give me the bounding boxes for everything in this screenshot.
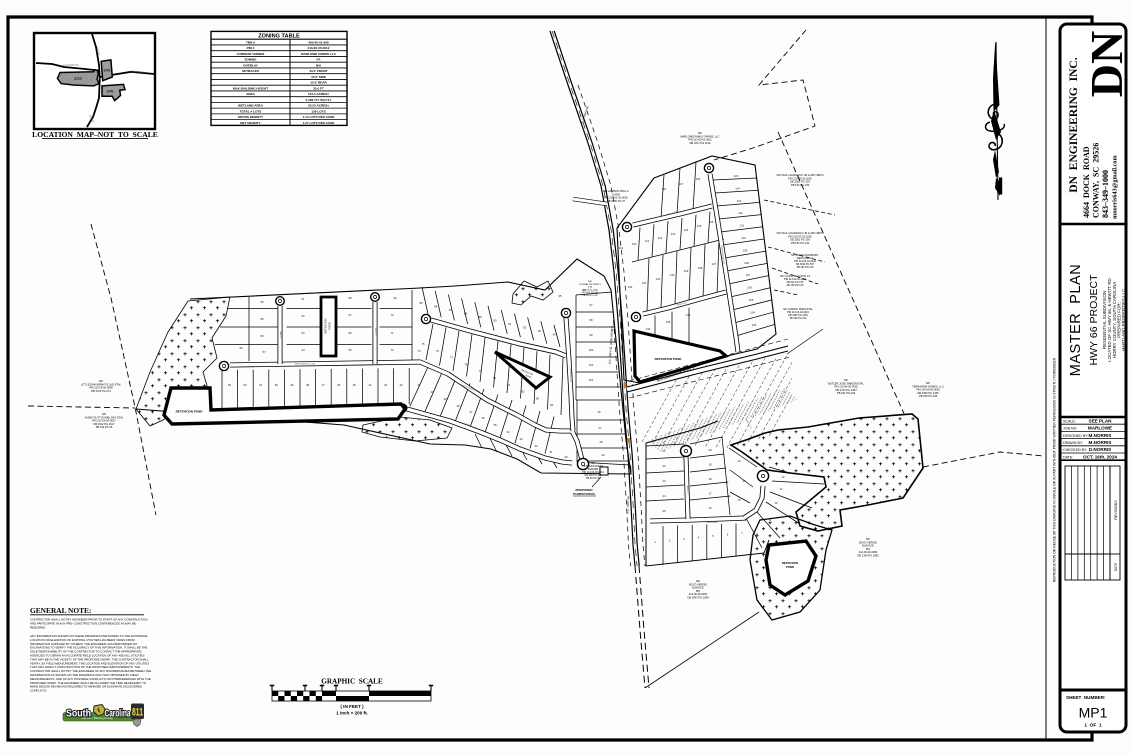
svg-text:M.NORRIS: M.NORRIS: [1089, 440, 1112, 445]
svg-text:37: 37: [469, 410, 473, 414]
svg-text:POND: POND: [786, 565, 794, 569]
svg-text:95: 95: [558, 294, 562, 298]
svg-text:41: 41: [417, 383, 421, 387]
svg-text:SEE PLAN: SEE PLAN: [1089, 418, 1113, 423]
svg-text:57: 57: [262, 350, 266, 354]
svg-text:843–349–1000: 843–349–1000: [1101, 170, 1110, 218]
svg-text:OCT. 16th, 2024: OCT. 16th, 2024: [1083, 454, 1117, 459]
svg-text:106: 106: [747, 286, 752, 290]
svg-text:213-02-02-0066: 213-02-02-0066: [582, 289, 598, 291]
svg-text:PB 182 PG 109: PB 182 PG 109: [790, 317, 807, 320]
svg-text:Carolina: Carolina: [105, 709, 131, 720]
svg-text:120: 120: [632, 242, 637, 246]
svg-text:26: 26: [597, 410, 601, 414]
svg-text:39: 39: [443, 397, 447, 401]
svg-text:RETENTION: RETENTION: [324, 318, 328, 333]
svg-text:CONWAY, SC 29526: CONWAY, SC 29526: [1092, 143, 1101, 218]
svg-text:213-00-00-0012: 213-00-00-0012: [307, 46, 329, 50]
svg-text:136: 136: [686, 313, 691, 317]
svg-text:35.0 FT: 35.0 FT: [313, 86, 324, 90]
svg-text:130: 130: [670, 273, 675, 277]
svg-text:KATIE AVE: KATIE AVE: [707, 521, 719, 524]
svg-text:56: 56: [239, 346, 243, 350]
svg-text:98: 98: [589, 318, 593, 322]
svg-text:10: 10: [774, 501, 778, 505]
svg-text:South: South: [66, 709, 91, 720]
svg-text:116: 116: [662, 187, 667, 191]
svg-text:DB 1843 PG 1098: DB 1843 PG 1098: [687, 595, 709, 599]
svg-text:PUMPSTATION: PUMPSTATION: [573, 492, 594, 496]
svg-text:40: 40: [430, 390, 434, 394]
svg-text:61: 61: [301, 297, 305, 301]
svg-text:mnorris643@gmail.com: mnorris643@gmail.com: [1112, 154, 1119, 219]
svg-text:PB 329 PG 238: PB 329 PG 238: [919, 394, 938, 398]
svg-text:60: 60: [260, 300, 264, 304]
svg-text:50: 50: [275, 383, 279, 387]
svg-text:117: 117: [679, 182, 684, 186]
svg-text:77: 77: [450, 356, 454, 360]
svg-text:SITE: SITE: [74, 77, 82, 81]
svg-text:114: 114: [735, 186, 740, 190]
svg-text:122: 122: [658, 236, 663, 240]
svg-text:ANNA CT: ANNA CT: [686, 485, 689, 495]
svg-text:110: 110: [741, 236, 746, 240]
svg-text:DB 2956 PG 37: DB 2956 PG 37: [607, 199, 626, 203]
svg-text:24: 24: [662, 494, 666, 498]
svg-text:PIN #: PIN #: [247, 46, 255, 50]
svg-text:17: 17: [708, 492, 712, 496]
svg-text:JOB NO.: JOB NO.: [1063, 427, 1077, 431]
svg-text:12: 12: [781, 475, 785, 479]
svg-text:119: 119: [619, 246, 624, 250]
svg-text:15.0' REAR: 15.0' REAR: [310, 81, 327, 85]
svg-text:125: 125: [697, 224, 702, 228]
svg-text:63: 63: [301, 331, 305, 335]
svg-text:PB 152 PG 139: PB 152 PG 139: [787, 284, 804, 287]
svg-text:59: 59: [260, 334, 264, 338]
svg-text:29: 29: [601, 453, 605, 457]
svg-text:107: 107: [746, 273, 751, 277]
svg-text:MP1: MP1: [1079, 705, 1108, 721]
svg-text:102: 102: [589, 378, 594, 382]
svg-text:HARTLAND PROPERTIES LLC: HARTLAND PROPERTIES LLC: [1121, 289, 1126, 351]
svg-text:90: 90: [493, 319, 497, 323]
svg-text:64: 64: [301, 348, 305, 352]
svg-text:AREA: AREA: [246, 92, 256, 96]
svg-text:100: 100: [589, 348, 594, 352]
svg-text:5,292,717 SQ.FT.±: 5,292,717 SQ.FT.±: [306, 98, 332, 102]
svg-text:OAK CT: OAK CT: [279, 331, 282, 340]
svg-text:DB 1004 PG 593: DB 1004 PG 593: [582, 292, 599, 294]
svg-text:78: 78: [464, 362, 468, 366]
svg-text:69: 69: [393, 296, 397, 300]
svg-text:48: 48: [306, 383, 310, 387]
svg-text:62: 62: [301, 314, 305, 318]
svg-text:PB 152 PG 139: PB 152 PG 139: [582, 295, 598, 297]
svg-text:( IN FEET ): ( IN FEET ): [340, 704, 364, 709]
svg-text:1.27 LOTS PER ACRE: 1.27 LOTS PER ACRE: [303, 121, 335, 125]
svg-text:WETLAND AREA: WETLAND AREA: [238, 104, 264, 108]
svg-text:127: 127: [712, 262, 717, 266]
svg-text:105: 105: [749, 298, 754, 302]
svg-text:ZONING TABLE: ZONING TABLE: [258, 34, 300, 40]
svg-text:53: 53: [228, 383, 232, 387]
svg-text:PB 152 PG 139: PB 152 PG 139: [791, 241, 810, 245]
svg-text:88: 88: [464, 312, 468, 316]
svg-text:463-00-01-060: 463-00-01-060: [308, 40, 329, 44]
svg-text:ZONING: ZONING: [244, 58, 257, 62]
svg-text:SADDLEBROOK DR: SADDLEBROOK DR: [295, 363, 316, 366]
svg-text:129: 129: [684, 269, 689, 273]
svg-text:20: 20: [708, 448, 712, 452]
svg-text:43: 43: [384, 383, 388, 387]
svg-text:D.NORRIS: D.NORRIS: [1089, 447, 1111, 452]
svg-text:RETENTION POND: RETENTION POND: [176, 410, 204, 414]
svg-text:1 OF 1: 1 OF 1: [1084, 723, 1102, 729]
svg-text:131: 131: [656, 277, 661, 281]
svg-text:1.14 LOTS PER ACRE: 1.14 LOTS PER ACRE: [303, 115, 335, 119]
svg-text:44: 44: [368, 383, 372, 387]
svg-text:133: 133: [628, 285, 633, 289]
svg-text:TOTAL # LOTS: TOTAL # LOTS: [240, 109, 262, 113]
svg-text:13: 13: [737, 459, 741, 463]
svg-text:80: 80: [493, 376, 497, 380]
svg-text:58: 58: [260, 317, 264, 321]
svg-text:83: 83: [536, 396, 540, 400]
svg-text:35: 35: [493, 423, 497, 427]
svg-text:CONWAY PROPERTY: CONWAY PROPERTY: [579, 283, 602, 286]
svg-text:SHEET NUMBER:: SHEET NUMBER:: [1066, 695, 1106, 700]
svg-text:HWY 66 PROJECT: HWY 66 PROJECT: [1088, 274, 1100, 366]
svg-text:128: 128: [698, 266, 703, 270]
svg-text:49: 49: [290, 383, 294, 387]
svg-text:REPRODUCTION OR REUSE OF THIS: REPRODUCTION OR REUSE OF THIS DRAWING IN…: [1053, 357, 1057, 582]
svg-text:MASTER PLAN: MASTER PLAN: [1068, 264, 1084, 376]
svg-text:SETBACKS: SETBACKS: [242, 69, 259, 73]
svg-text:33: 33: [519, 437, 523, 441]
svg-text:71: 71: [390, 331, 394, 335]
svg-text:126: 126: [709, 220, 714, 224]
svg-text:89: 89: [479, 315, 483, 319]
svg-text:SITE: SITE: [106, 90, 113, 94]
svg-text:108: 108: [744, 261, 749, 265]
svg-text:46: 46: [337, 383, 341, 387]
svg-text:DB 1345 PG 1085: DB 1345 PG 1085: [857, 553, 879, 557]
svg-text:15.0' SIDE: 15.0' SIDE: [311, 75, 326, 79]
svg-text:LOCATION MAP–NOT TO SCALE: LOCATION MAP–NOT TO SCALE: [32, 130, 158, 139]
svg-text:DATE:: DATE:: [1063, 455, 1073, 459]
svg-text:11: 11: [780, 487, 783, 491]
svg-text:82: 82: [522, 390, 526, 394]
svg-text:RETENTION POND: RETENTION POND: [655, 357, 683, 361]
svg-text:91: 91: [508, 322, 512, 326]
svg-text:811: 811: [132, 707, 143, 719]
svg-text:CHECKED BY:: CHECKED BY:: [1063, 448, 1087, 452]
svg-text:POND: POND: [328, 322, 332, 330]
svg-text:123: 123: [671, 232, 676, 236]
svg-text:23: 23: [662, 479, 666, 483]
svg-text:32: 32: [534, 444, 538, 448]
svg-text:CYPRESS AVE: CYPRESS AVE: [569, 367, 573, 383]
svg-text:DATE: DATE: [1114, 563, 1118, 571]
svg-text:SITE: SITE: [103, 69, 110, 73]
svg-text:21: 21: [662, 449, 666, 453]
svg-text:SCALE:: SCALE:: [1063, 419, 1076, 423]
svg-text:93: 93: [538, 329, 542, 333]
svg-text:70: 70: [390, 313, 394, 317]
svg-text:GROSS DENSITY: GROSS DENSITY: [238, 115, 264, 119]
svg-text:97: 97: [589, 303, 593, 307]
svg-text:92: 92: [523, 326, 527, 330]
svg-text:DN: DN: [1081, 31, 1132, 97]
svg-text:79: 79: [479, 369, 483, 373]
svg-text:76: 76: [436, 349, 440, 353]
svg-text:112: 112: [738, 211, 743, 215]
svg-text:139 LOTS: 139 LOTS: [311, 109, 325, 113]
svg-text:GENERAL NOTE:: GENERAL NOTE:: [30, 606, 91, 615]
svg-text:25: 25: [662, 509, 666, 513]
svg-text:ELM CT: ELM CT: [374, 328, 376, 337]
svg-text:81: 81: [507, 383, 511, 387]
svg-text:4664 DOCK ROAD: 4664 DOCK ROAD: [1082, 146, 1091, 218]
svg-text:115: 115: [734, 174, 739, 178]
svg-text:118: 118: [696, 177, 701, 181]
svg-text:42: 42: [400, 383, 404, 387]
svg-text:25.25 ACRES±: 25.25 ACRES±: [308, 104, 329, 108]
svg-text:68: 68: [348, 296, 352, 300]
svg-text:85: 85: [419, 301, 423, 305]
svg-text:47: 47: [322, 383, 326, 387]
svg-text:PB 152 PG 139: PB 152 PG 139: [797, 266, 814, 269]
svg-text:DB 3217 PG 1139: DB 3217 PG 1139: [690, 141, 711, 145]
svg-text:75: 75: [421, 342, 425, 346]
svg-text:51: 51: [259, 383, 263, 387]
svg-text:1 inch = 200 ft.: 1 inch = 200 ft.: [336, 711, 368, 716]
svg-text:CONFLICTS.: CONFLICTS.: [30, 689, 47, 693]
svg-text:N/A: N/A: [316, 63, 322, 67]
svg-text:73: 73: [417, 349, 421, 353]
svg-text:PB 231 PG 239: PB 231 PG 239: [837, 391, 856, 395]
svg-text:22: 22: [662, 464, 666, 468]
svg-text:PB 26 PG 35: PB 26 PG 35: [586, 477, 601, 480]
svg-text:40.0' FRONT: 40.0' FRONT: [309, 69, 327, 73]
svg-text:65: 65: [348, 348, 352, 352]
svg-text:GILSTRAP RD: GILSTRAP RD: [63, 64, 79, 67]
svg-text:27: 27: [598, 426, 602, 430]
svg-text:103: 103: [752, 323, 757, 327]
svg-text:111: 111: [740, 224, 745, 228]
svg-text:REVISIONS: REVISIONS: [1114, 500, 1118, 520]
svg-text:101: 101: [589, 363, 594, 367]
svg-text:67: 67: [348, 313, 352, 317]
svg-text:28: 28: [599, 440, 603, 444]
svg-text:104: 104: [750, 310, 755, 314]
svg-text:DESIGNED BY:: DESIGNED BY:: [1063, 434, 1088, 438]
svg-text:109: 109: [743, 248, 748, 252]
svg-text:MAX BUILDING HEIGHT: MAX BUILDING HEIGHT: [233, 86, 268, 90]
svg-text:M.NORRIS: M.NORRIS: [1089, 433, 1112, 438]
svg-text:87: 87: [449, 308, 453, 312]
svg-text:OVERLAY: OVERLAY: [243, 63, 259, 67]
svg-text:CURRENT OWNER: CURRENT OWNER: [237, 52, 266, 56]
svg-text:99: 99: [589, 333, 593, 337]
svg-text:DRAWN BY:: DRAWN BY:: [1063, 441, 1083, 445]
svg-text:DN ENGINEERING INC.: DN ENGINEERING INC.: [1068, 57, 1080, 192]
svg-text:14: 14: [742, 479, 746, 483]
svg-text:45: 45: [353, 383, 357, 387]
svg-text:121: 121: [645, 239, 650, 243]
svg-text:86: 86: [434, 305, 438, 309]
svg-text:MARLOWE: MARLOWE: [1088, 426, 1112, 431]
svg-text:135: 135: [666, 320, 671, 324]
svg-text:GRAPHIC SCALE: GRAPHIC SCALE: [321, 678, 383, 686]
svg-text:121.5 ACRES±: 121.5 ACRES±: [308, 92, 329, 96]
svg-text:PB 342 PG 26: PB 342 PG 26: [96, 425, 113, 429]
svg-text:132: 132: [642, 281, 647, 285]
svg-text:MARLOWE FARMS LLC: MARLOWE FARMS LLC: [301, 52, 337, 56]
svg-text:113: 113: [737, 199, 742, 203]
svg-text:REQUIRED.: REQUIRED.: [30, 625, 46, 629]
svg-text:94: 94: [553, 333, 557, 337]
svg-text:31: 31: [549, 450, 553, 454]
svg-text:19: 19: [708, 463, 712, 467]
svg-text:72: 72: [390, 348, 394, 352]
svg-text:PB 152 PG 139: PB 152 PG 139: [791, 183, 810, 187]
svg-text:124: 124: [684, 228, 689, 232]
svg-text:15: 15: [737, 498, 741, 502]
svg-text:52: 52: [244, 383, 248, 387]
svg-text:36: 36: [481, 416, 485, 420]
svg-text:84: 84: [550, 403, 554, 407]
svg-text:16: 16: [708, 506, 712, 510]
svg-text:NET DENSITY: NET DENSITY: [240, 121, 261, 125]
svg-text:134: 134: [646, 327, 651, 331]
svg-text:66: 66: [348, 331, 352, 335]
svg-text:TMS #: TMS #: [246, 40, 255, 44]
svg-text:38: 38: [456, 404, 460, 408]
svg-text:18: 18: [708, 477, 712, 481]
svg-text:34: 34: [506, 430, 510, 434]
svg-text:30: 30: [564, 455, 568, 459]
svg-text:DB 3763 PG 274: DB 3763 PG 274: [91, 389, 111, 393]
